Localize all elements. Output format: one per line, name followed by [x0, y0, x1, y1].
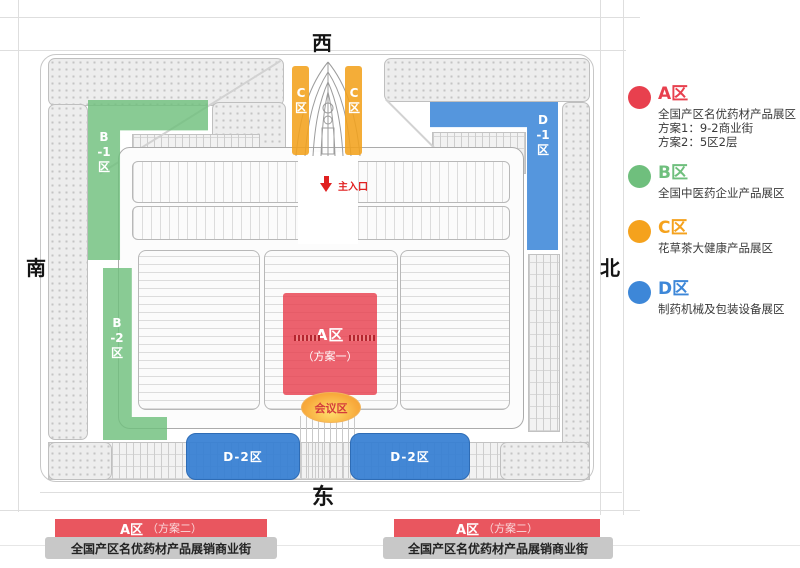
road-line: [623, 0, 624, 515]
zone-b2-label: B-2区: [110, 316, 124, 361]
conference-area: 会议区: [301, 392, 361, 423]
entrance-plaza: [298, 152, 358, 244]
legend-line: 全国中医药企业产品展区: [658, 186, 785, 200]
legend-line: 方案2：5区2层: [658, 135, 796, 149]
legend-line: 全国产区名优药材产品展区: [658, 107, 796, 121]
main-entrance-arrow-icon: [324, 176, 329, 183]
zone-a-area: A区 （方案一）: [283, 293, 377, 395]
legend-dot-d-icon: [628, 281, 651, 304]
tree-parcel: [500, 442, 590, 480]
compass-south: 南: [26, 252, 46, 281]
legend-item-d: D区 制药机械及包装设备展区: [628, 280, 800, 316]
zone-c-left-label: C区: [294, 86, 308, 116]
zone-c-right-label: C区: [347, 86, 361, 116]
banner-left-title-bar: A区 （方案二）: [55, 519, 267, 537]
road-line: [18, 0, 19, 512]
legend-dot-b-icon: [628, 165, 651, 188]
tree-parcel: [48, 442, 112, 480]
main-entrance-label: 主入口: [338, 178, 368, 193]
banner-right-description: 全国产区名优药材产品展销商业街: [408, 540, 588, 557]
hall-block: [400, 250, 510, 410]
compass-north: 北: [600, 252, 620, 281]
legend-line: 方案1：9-2商业街: [658, 121, 796, 135]
conference-label: 会议区: [315, 400, 348, 416]
zone-b1-label: B-1区: [97, 130, 111, 175]
tree-parcel: [562, 102, 590, 480]
banner-left-description-bar: 全国产区名优药材产品展销商业街: [45, 537, 277, 559]
south-walkway: [300, 416, 356, 478]
zone-d2-left-area: D-2区: [186, 433, 300, 480]
legend-title-b: B区: [658, 164, 785, 183]
legend-item-c: C区 花草茶大健康产品展区: [628, 219, 800, 255]
banner-left-title: A区: [120, 519, 143, 538]
banner-left-description: 全国产区名优药材产品展销商业街: [71, 540, 251, 557]
zone-a-hatch: [294, 335, 320, 341]
legend-line: 花草茶大健康产品展区: [658, 241, 773, 255]
tree-parcel: [384, 58, 590, 102]
banner-right-title-bar: A区 （方案二）: [394, 519, 600, 537]
compass-west: 西: [312, 27, 332, 56]
zone-a-hatch: [349, 335, 375, 341]
banner-right-description-bar: 全国产区名优药材产品展销商业街: [383, 537, 613, 559]
compass-east: 东: [312, 479, 334, 511]
zone-d2-right-area: D-2区: [350, 433, 470, 480]
site-plan-page: B-1区 B-2区 D-1区 C区 C区 A区 （方案一） 会议区 D-2区 D…: [0, 0, 800, 568]
banner-left-subtitle: （方案二）: [147, 520, 202, 536]
legend-title-d: D区: [658, 280, 785, 299]
legend-line: 制药机械及包装设备展区: [658, 302, 785, 316]
legend-title-c: C区: [658, 219, 773, 238]
legend-item-a: A区 全国产区名优药材产品展区 方案1：9-2商业街 方案2：5区2层: [628, 85, 800, 149]
zone-d2-left-label: D-2区: [223, 448, 263, 465]
legend-dot-c-icon: [628, 220, 651, 243]
legend-dot-a-icon: [628, 86, 651, 109]
parking-rows: [528, 254, 560, 432]
legend-item-b: B区 全国中医药企业产品展区: [628, 164, 800, 200]
zone-a-subtitle: （方案一）: [303, 348, 358, 364]
tree-parcel: [48, 104, 88, 440]
tree-parcel: [48, 58, 284, 106]
hall-block: [138, 250, 260, 410]
main-entrance-arrow-icon: [320, 183, 332, 192]
banner-right-subtitle: （方案二）: [483, 520, 538, 536]
zone-d2-right-label: D-2区: [390, 448, 430, 465]
banner-right-title: A区: [456, 519, 479, 538]
road-line: [0, 17, 640, 18]
zone-d1-label: D-1区: [536, 113, 550, 158]
legend-title-a: A区: [658, 85, 796, 104]
